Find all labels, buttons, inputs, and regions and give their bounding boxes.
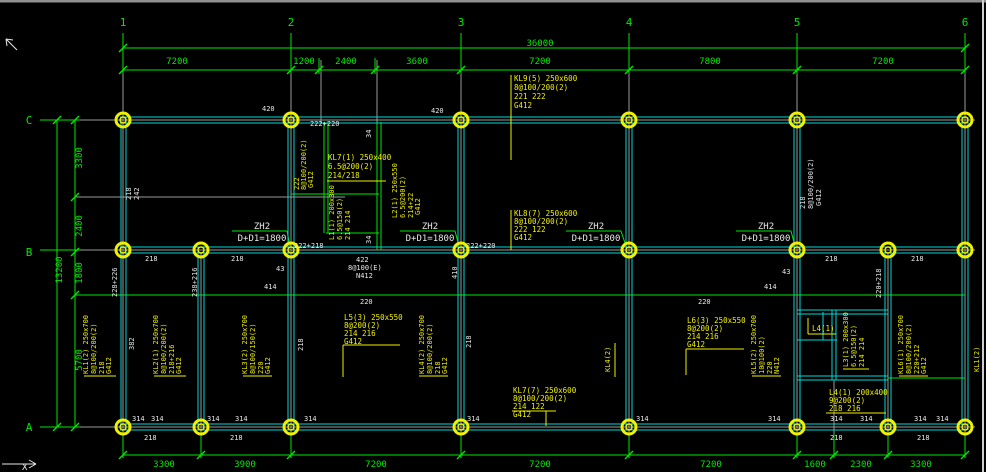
- beam-label-text: 8@100/200(2): [514, 83, 568, 92]
- rebar-label-text: D+D1=1800: [742, 234, 791, 244]
- dimension-text: 7200: [529, 57, 551, 67]
- rebar-label-text: 218: [917, 434, 930, 442]
- rebar-label-text: 314: [914, 415, 927, 423]
- rebar-label-text: 218: [911, 255, 924, 263]
- rebar-label-text: 218: [230, 434, 243, 442]
- rebar-label-text: 314: [151, 415, 164, 423]
- beam-label-text: G412: [344, 337, 362, 346]
- rebar-label-text: 218: [297, 338, 305, 351]
- axis-bubble-label: C: [26, 114, 33, 127]
- rebar-label-text: 218: [465, 335, 473, 348]
- rebar-label-text: 34: [365, 130, 373, 138]
- axis-bubble-label: B: [26, 246, 33, 259]
- rebar-label-text: 314: [304, 415, 317, 423]
- rebar-label-text: 43: [782, 268, 790, 276]
- rebar-label-text: 220: [698, 298, 711, 306]
- beam-label-text: 221 222: [514, 92, 546, 101]
- beam-label-text: G412: [687, 340, 705, 349]
- rebar-label-text: 222+218: [294, 242, 324, 250]
- beam-label-text: KL6(1) 250x700: [897, 315, 905, 374]
- beam-label-text: KL1(2) 250x700: [82, 315, 90, 374]
- beam-label-text: KL7(1) 250x400: [328, 153, 392, 162]
- rebar-label-text: 422: [356, 256, 369, 264]
- beam-label-text: G412: [307, 171, 315, 188]
- beam-label-text: G412: [920, 357, 928, 374]
- beam-label-text: 8@100/200(2): [905, 323, 913, 374]
- rebar-label-text: 238+216: [191, 267, 199, 297]
- dimension-text: 2300: [850, 460, 872, 470]
- dimension-text: 1800: [75, 262, 85, 284]
- beam-label-text: 8@100/200(2): [426, 323, 434, 374]
- rebar-label-text: D+D1=1800: [572, 234, 621, 244]
- dimension-text: 3600: [406, 57, 428, 67]
- rebar-label-text: 314: [207, 415, 220, 423]
- beam-label-text: G412: [514, 233, 532, 242]
- beam-label-text: KL4(2): [604, 347, 612, 372]
- rebar-label-text: 314: [936, 415, 949, 423]
- beam-label-text: 218 216: [829, 404, 861, 413]
- rebar-label-text: 314: [830, 415, 843, 423]
- beam-label-text: KL2(1) 250x700: [152, 315, 160, 374]
- rebar-label-text: 218: [830, 434, 843, 442]
- beam-label-text: KL5(2) 250x700: [750, 315, 758, 374]
- beam-label-text: 214 214: [858, 337, 866, 367]
- rebar-label-text: 8@100/200(2): [807, 158, 815, 209]
- rebar-label-text: 220+218: [875, 268, 883, 298]
- dimension-text: 3300: [75, 147, 85, 169]
- beam-label-text: G412: [175, 357, 183, 374]
- dimension-text: 1200: [293, 57, 315, 67]
- beam-label-text: G412: [441, 357, 449, 374]
- rebar-label-text: 314: [235, 415, 248, 423]
- beam-label-text: 8@100/200(2): [90, 323, 98, 374]
- axis-bubble-label: A: [26, 421, 33, 434]
- rebar-label-text: 218: [145, 255, 158, 263]
- rebar-label-text: X: [22, 463, 28, 472]
- axis-bubble-label: 6: [962, 16, 969, 29]
- beam-label-text: L1(1) 200x300: [328, 185, 336, 240]
- cad-viewport: 123456CBA3600072001200240036007200780072…: [0, 0, 986, 472]
- dimension-text: 7200: [365, 460, 387, 470]
- rebar-label-text: ZH2: [588, 222, 604, 232]
- beam-label-text: G412: [264, 357, 272, 374]
- axis-bubble-label: 4: [626, 16, 633, 29]
- axis-bubble-label: 5: [794, 16, 801, 29]
- rebar-label-text: 314: [467, 415, 480, 423]
- beam-label-text: G412: [105, 357, 113, 374]
- axis-bubble-label: 1: [120, 16, 127, 29]
- beam-label-text: 214/218: [328, 171, 360, 180]
- rebar-label-text: 414: [764, 283, 777, 291]
- rebar-label-text: 314: [860, 415, 873, 423]
- rebar-label-text: G412: [815, 189, 823, 206]
- dimension-text: 3300: [910, 460, 932, 470]
- rebar-label-text: N412: [356, 272, 373, 280]
- dimension-text: 1600: [804, 460, 826, 470]
- rebar-label-text: 220: [360, 298, 373, 306]
- rebar-label-text: ZH2: [758, 222, 774, 232]
- rebar-label-text: 314: [768, 415, 781, 423]
- rebar-label-text: 8@100(E): [348, 264, 382, 272]
- beam-label-text: L2(1) 250x550: [391, 163, 399, 218]
- rebar-label-text: D+D1=1800: [406, 234, 455, 244]
- dimension-text: 3300: [153, 460, 175, 470]
- rebar-label-text: 382: [128, 337, 136, 350]
- rebar-label-text: D+D1=1800: [238, 234, 287, 244]
- beam-label-text: 6.5@200(2): [399, 176, 407, 218]
- rebar-label-text: 420: [431, 107, 444, 115]
- rebar-label-text: 314: [636, 415, 649, 423]
- rebar-label-text: 218: [125, 187, 133, 200]
- rebar-label-text: 218: [144, 434, 157, 442]
- dimension-text: 7200: [872, 57, 894, 67]
- rebar-label-text: 218: [825, 255, 838, 263]
- rebar-label-text: 242: [133, 187, 141, 200]
- beam-label-text: G412: [414, 198, 422, 215]
- beam-label-text: G412: [514, 101, 532, 110]
- beam-label-text: 6.5@150(2): [850, 325, 858, 367]
- axis-bubble-label: 2: [288, 16, 295, 29]
- dimension-text: 2400: [335, 57, 357, 67]
- rebar-label-text: ZH2: [422, 222, 438, 232]
- rebar-label-text: 218: [799, 196, 807, 209]
- beam-label-text: KL1(2): [973, 347, 981, 372]
- beam-label-text: KL4(2) 250x700: [418, 315, 426, 374]
- rebar-label-text: 420: [262, 105, 275, 113]
- dimension-text: 2400: [75, 215, 85, 237]
- dimension-text: 7200: [700, 460, 722, 470]
- beam-label-text: L3(1) 200x300: [842, 312, 850, 367]
- rebar-label-text: 228+226: [111, 267, 119, 297]
- dimension-text: 13200: [55, 256, 65, 283]
- beam-label-text: N412: [773, 357, 781, 374]
- beam-label-text: 8@100/200(2): [160, 323, 168, 374]
- rebar-label-text: 414: [264, 283, 277, 291]
- beam-label-text: 10@100(2): [758, 336, 766, 374]
- beam-label-text: 6.5@200(2): [328, 162, 373, 171]
- rebar-label-text: 222+220: [310, 120, 340, 128]
- rebar-label-text: 314: [132, 415, 145, 423]
- beam-label-text: 214 214: [344, 210, 352, 240]
- rebar-label-text: 222+220: [466, 242, 496, 250]
- beam-label-text: KL9(5) 250x600: [514, 74, 578, 83]
- beam-label-text: G412: [513, 410, 531, 419]
- dimension-text: 7200: [529, 460, 551, 470]
- rebar-label-text: 43: [276, 265, 284, 273]
- dimension-text: 7200: [166, 57, 188, 67]
- dimension-text: 36000: [526, 39, 553, 49]
- rebar-label-text: 34: [365, 236, 373, 244]
- beam-label-text: L4(1): [812, 324, 835, 333]
- beam-label-text: 6.5@150(2): [336, 198, 344, 240]
- cad-drawing-canvas[interactable]: 123456CBA3600072001200240036007200780072…: [0, 0, 986, 472]
- rebar-label-text: 410: [451, 266, 459, 279]
- dimension-text: 7800: [699, 57, 721, 67]
- rebar-label-text: 218: [231, 255, 244, 263]
- beam-label-text: 8@100/150(2): [249, 323, 257, 374]
- axis-bubble-label: 3: [458, 16, 465, 29]
- dimension-text: 3900: [234, 460, 256, 470]
- beam-label-text: KL3(2) 250x700: [241, 315, 249, 374]
- rebar-label-text: ZH2: [254, 222, 270, 232]
